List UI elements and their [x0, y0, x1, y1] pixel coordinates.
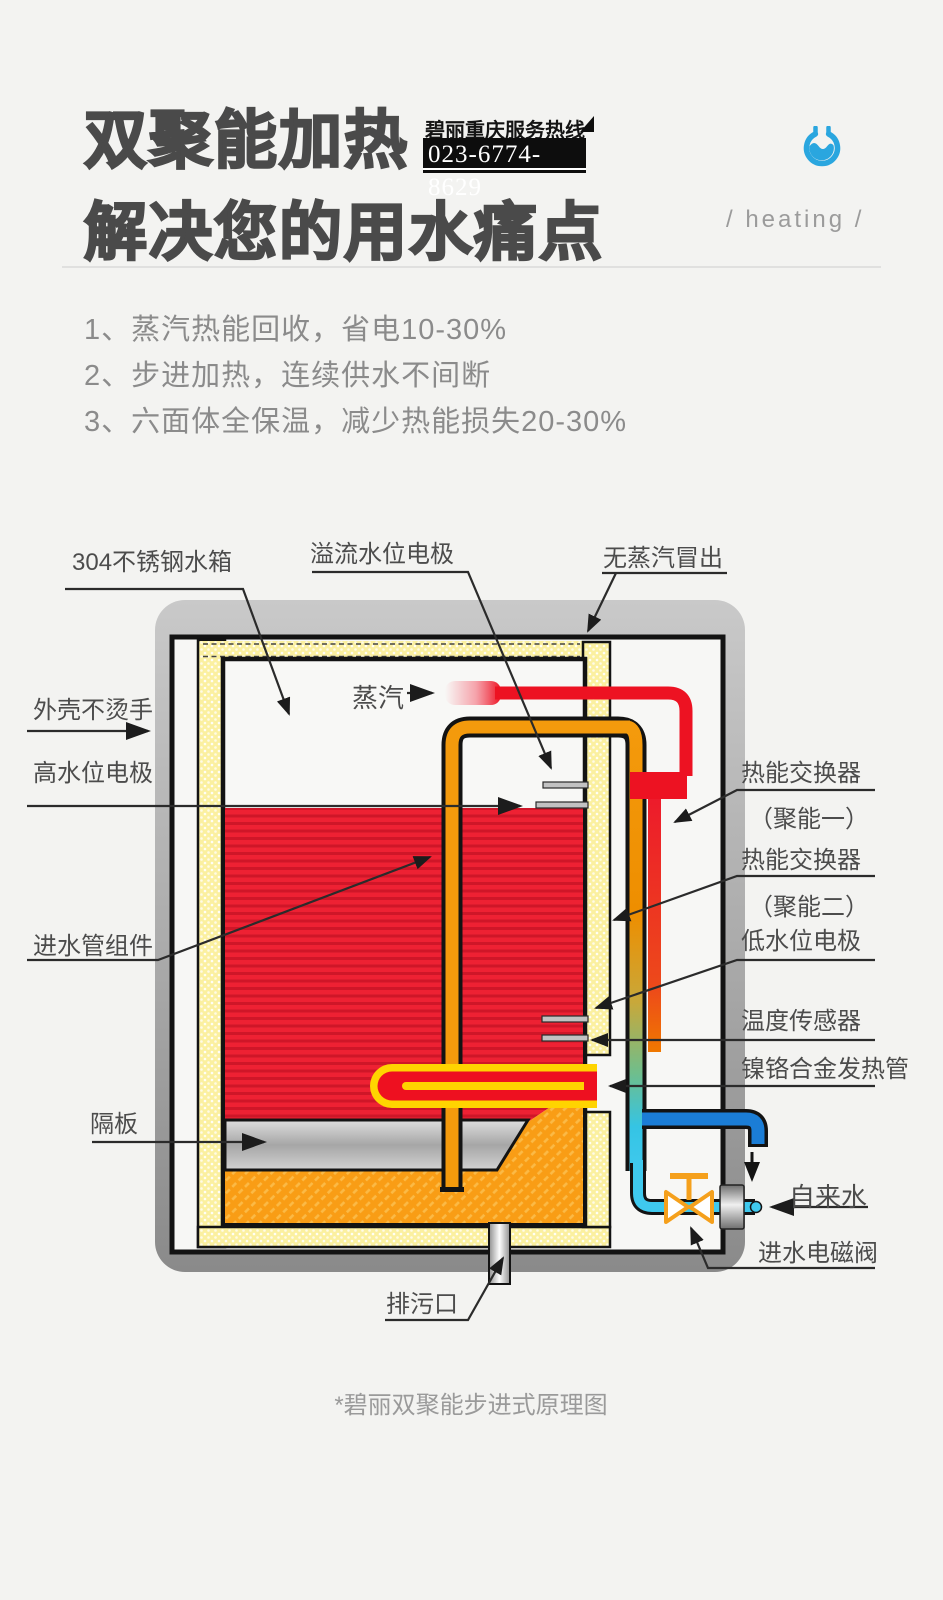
label-high-water-electrode: 高水位电极 — [33, 753, 153, 788]
solenoid-body — [720, 1185, 744, 1229]
label-304-tank: 304不锈钢水箱 — [72, 542, 232, 577]
label-no-steam: 无蒸汽冒出 — [603, 538, 723, 573]
tagline-heating: / heating / — [726, 206, 864, 234]
feature-item-2: 2、步进加热，连续供水不间断 — [84, 352, 491, 394]
main-title-line2: 解决您的用水痛点 — [84, 182, 604, 273]
header-divider — [62, 266, 881, 268]
main-title-line1: 双聚能加热 — [84, 90, 409, 181]
label-heat-exchanger-2: 热能交换器 — [741, 840, 861, 875]
feature-item-3: 3、六面体全保温，减少热能损失20-30% — [84, 398, 627, 440]
brand-water-logo-icon — [800, 126, 844, 170]
drain-pipe — [489, 1223, 510, 1284]
poster-page: 双聚能加热 解决您的用水痛点 碧丽重庆服务热线 023-6774-8629 / … — [0, 0, 943, 1600]
label-inlet-valve: 进水电磁阀 — [758, 1233, 878, 1268]
label-heat-exchanger-1: 热能交换器 — [741, 753, 861, 788]
label-heat-exchanger-1-sub: （聚能一） — [749, 799, 869, 834]
label-low-water-electrode: 低水位电极 — [741, 921, 861, 956]
heating-element — [370, 1064, 597, 1108]
overflow-electrode-bar — [543, 782, 588, 788]
label-inlet-pipe-assembly: 进水管组件 — [33, 926, 153, 961]
label-temp-sensor: 温度传感器 — [741, 1001, 861, 1036]
label-overflow-electrode: 溢流水位电极 — [310, 534, 454, 569]
feature-item-1: 1、蒸汽热能回收，省电10-30% — [84, 306, 507, 348]
label-tap-water: 自来水 — [789, 1177, 867, 1214]
label-drain: 排污口 — [386, 1284, 458, 1319]
low-water-electrode-bar — [542, 1016, 588, 1022]
water-tank — [223, 659, 585, 1225]
flow-down-arrow — [744, 1162, 760, 1182]
label-heater-tube: 镍铬合金发热管 — [741, 1049, 909, 1084]
figure-caption: *碧丽双聚能步进式原理图 — [334, 1385, 607, 1420]
label-heat-exchanger-2-sub: （聚能二） — [749, 887, 869, 922]
heat-exchanger-strip — [648, 799, 661, 1052]
label-steam: 蒸汽 — [352, 678, 404, 715]
label-partition: 隔板 — [90, 1104, 138, 1139]
partition-plate — [225, 1120, 528, 1170]
label-shell-cool: 外壳不烫手 — [33, 690, 153, 725]
temp-sensor-bar — [542, 1035, 588, 1041]
high-water-electrode-bar — [536, 802, 588, 808]
hotline-number[interactable]: 023-6774-8629 — [423, 138, 586, 173]
